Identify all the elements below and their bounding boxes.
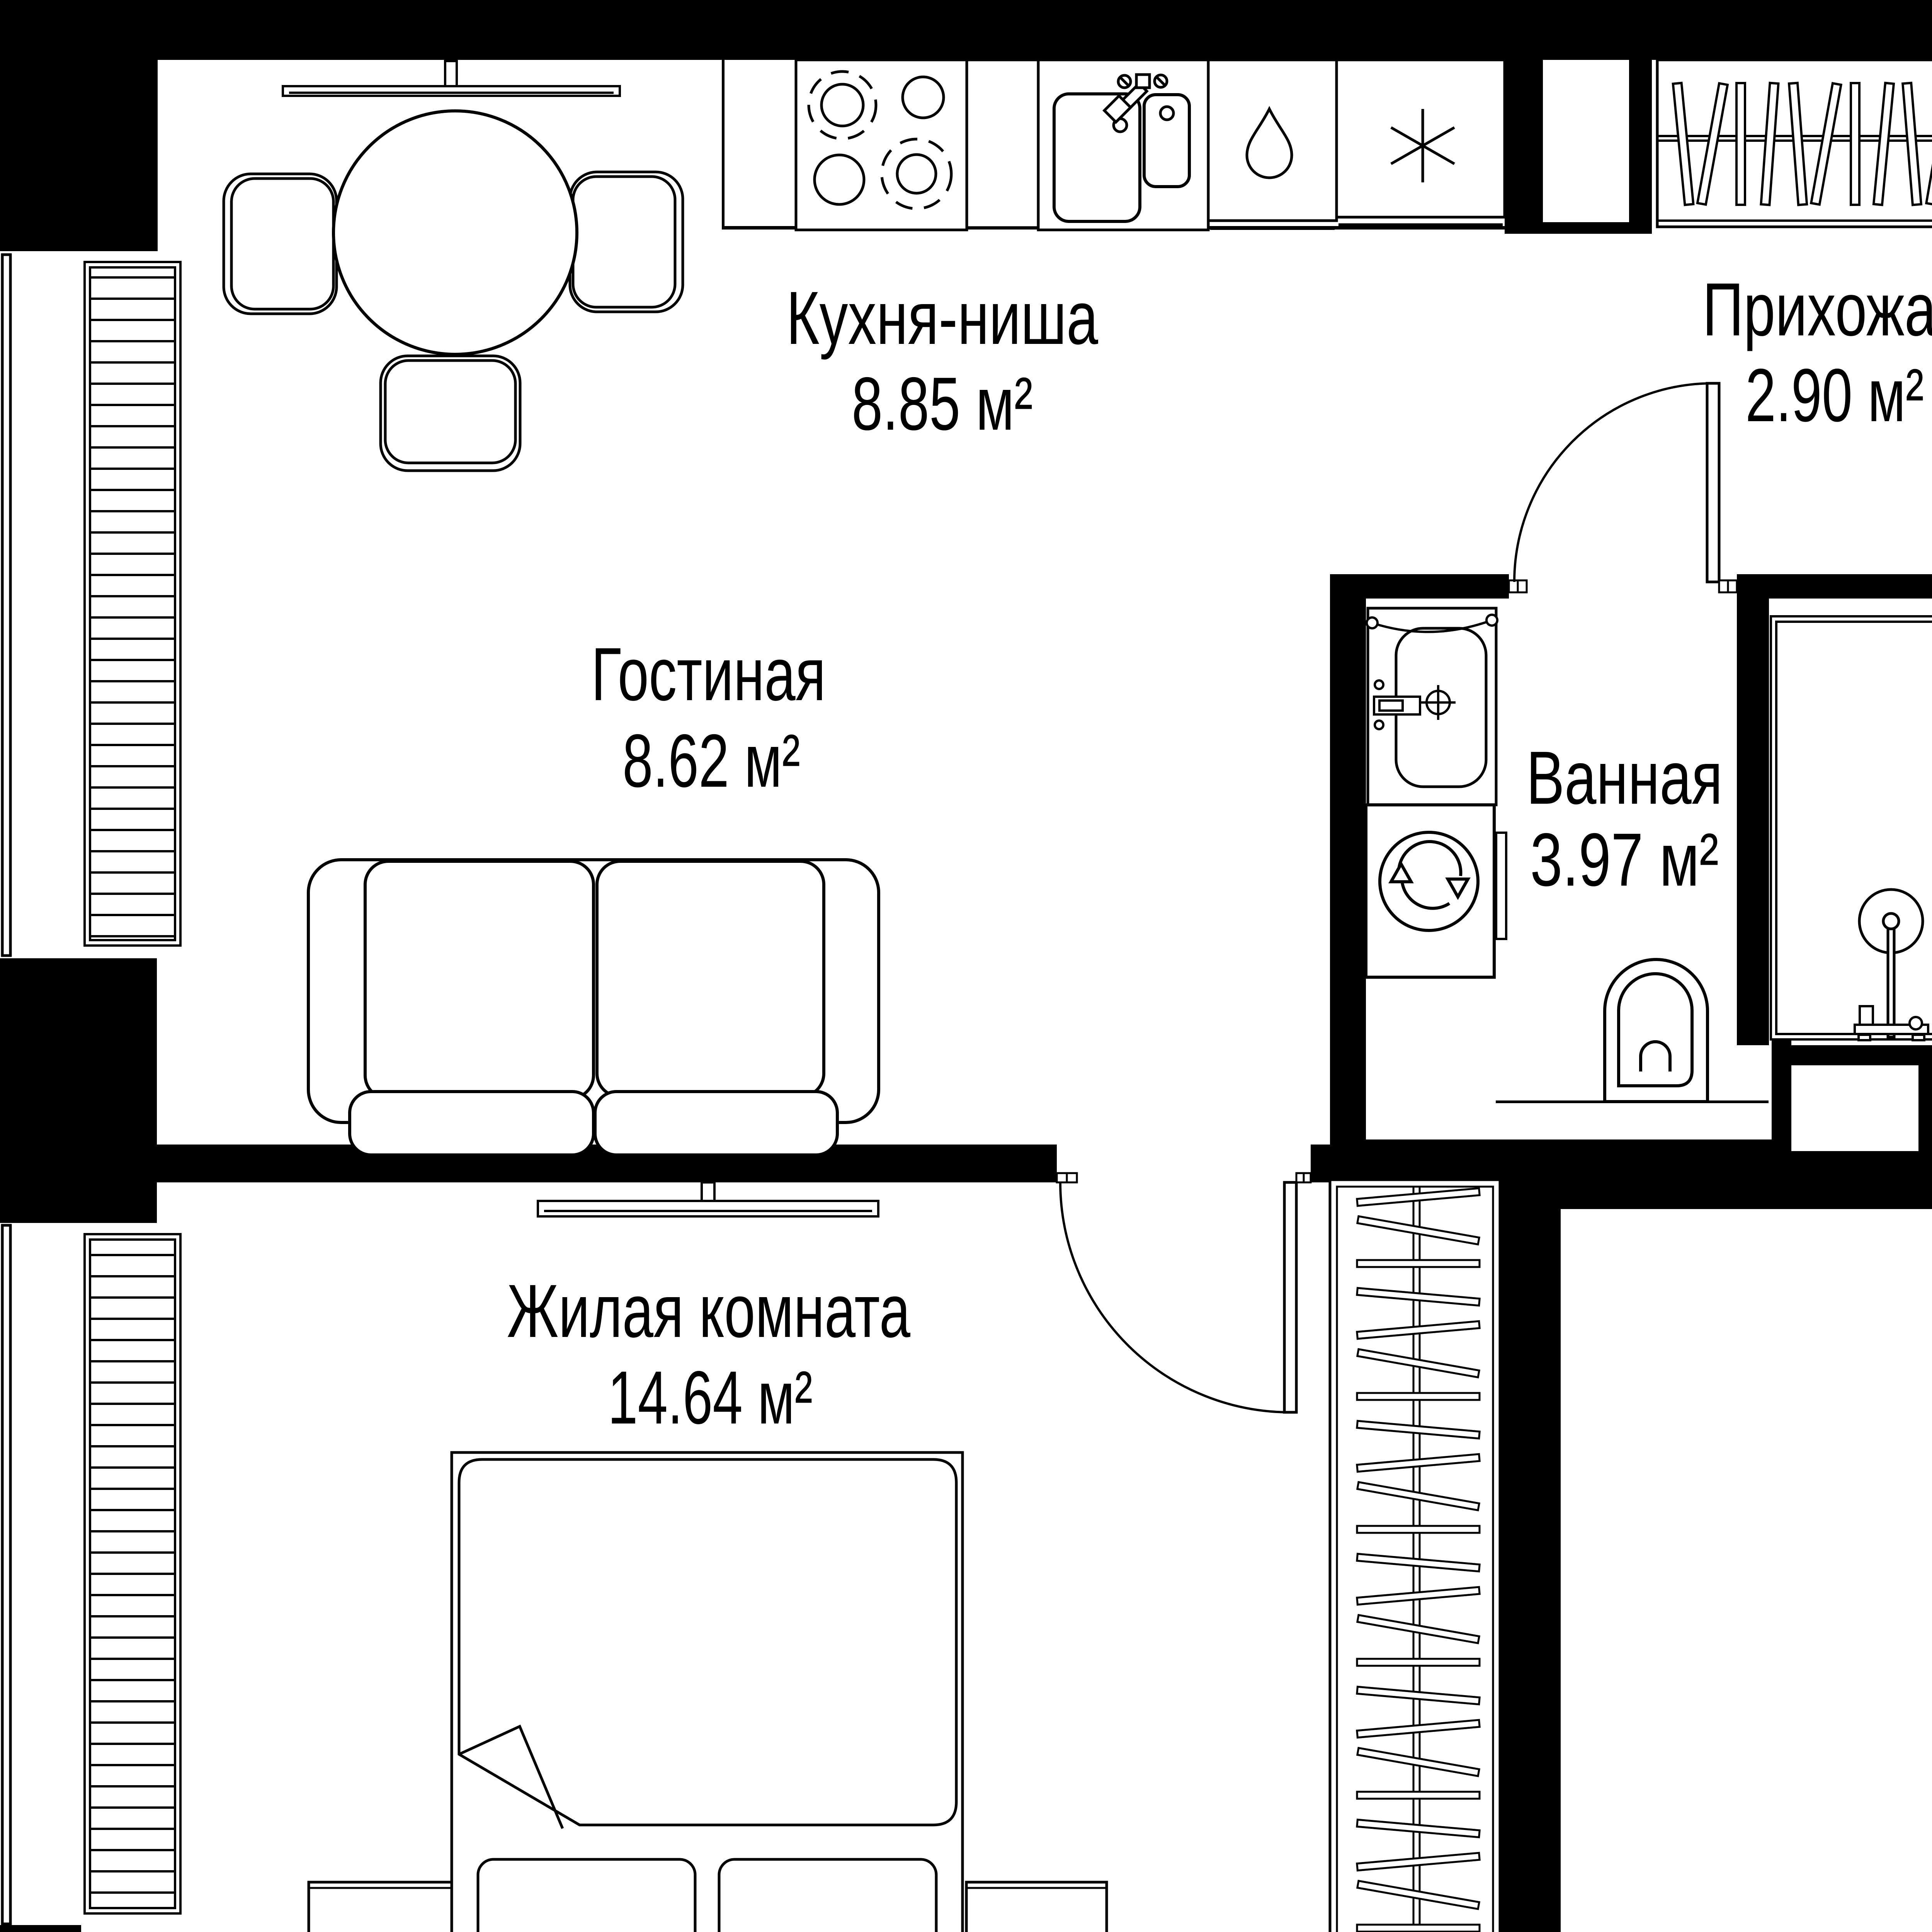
svg-text:8.62 м²: 8.62 м² — [622, 719, 800, 803]
svg-text:14.64 м²: 14.64 м² — [608, 1355, 813, 1440]
svg-text:2.90 м²: 2.90 м² — [1745, 353, 1924, 437]
svg-text:Прихожая: Прихожая — [1702, 267, 1932, 352]
svg-text:Кухня-ниша: Кухня-ниша — [786, 276, 1098, 360]
svg-text:Гостиная: Гостиная — [591, 632, 826, 716]
svg-text:Жилая комната: Жилая комната — [507, 1269, 910, 1353]
svg-text:Ванная: Ванная — [1526, 736, 1723, 820]
svg-text:8.85 м²: 8.85 м² — [852, 362, 1033, 446]
svg-text:3.97 м²: 3.97 м² — [1530, 818, 1719, 902]
